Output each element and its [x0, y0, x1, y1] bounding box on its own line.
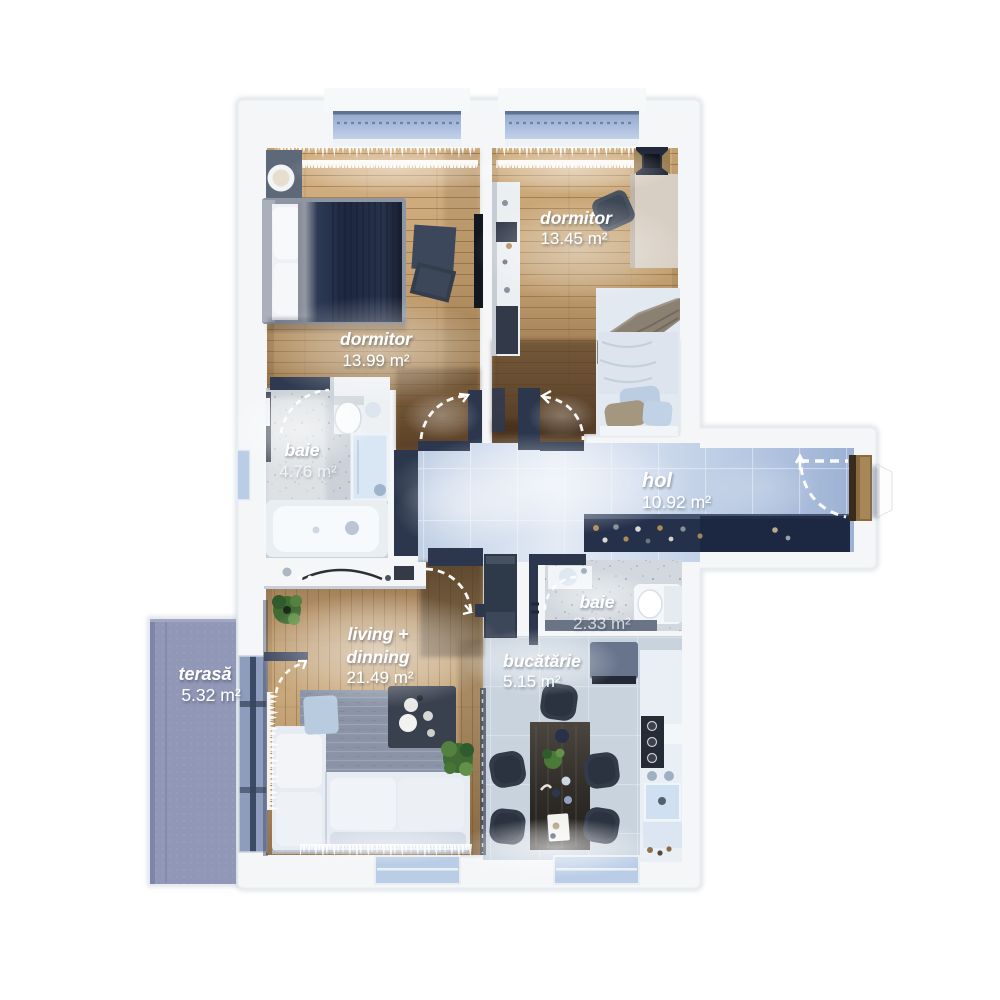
svg-text:13.45 m²: 13.45 m²	[540, 229, 607, 248]
svg-text:dormitor: dormitor	[340, 329, 413, 349]
svg-text:21.49 m²: 21.49 m²	[346, 668, 413, 687]
svg-text:5.15 m²: 5.15 m²	[503, 672, 561, 691]
svg-text:bucătărie: bucătărie	[503, 651, 581, 671]
svg-text:5.32 m²: 5.32 m²	[181, 685, 240, 705]
svg-text:baie: baie	[284, 440, 319, 460]
svg-text:dormitor: dormitor	[540, 208, 613, 228]
svg-text:hol: hol	[642, 470, 672, 492]
svg-text:2.33 m²: 2.33 m²	[573, 614, 631, 633]
svg-text:baie: baie	[579, 592, 614, 612]
svg-text:terasă: terasă	[178, 664, 231, 684]
svg-text:4.76 m²: 4.76 m²	[279, 462, 337, 481]
svg-text:living +: living +	[348, 624, 409, 644]
svg-text:dinning: dinning	[346, 647, 409, 667]
svg-text:13.99 m²: 13.99 m²	[342, 351, 409, 370]
svg-text:10.92 m²: 10.92 m²	[642, 492, 711, 512]
